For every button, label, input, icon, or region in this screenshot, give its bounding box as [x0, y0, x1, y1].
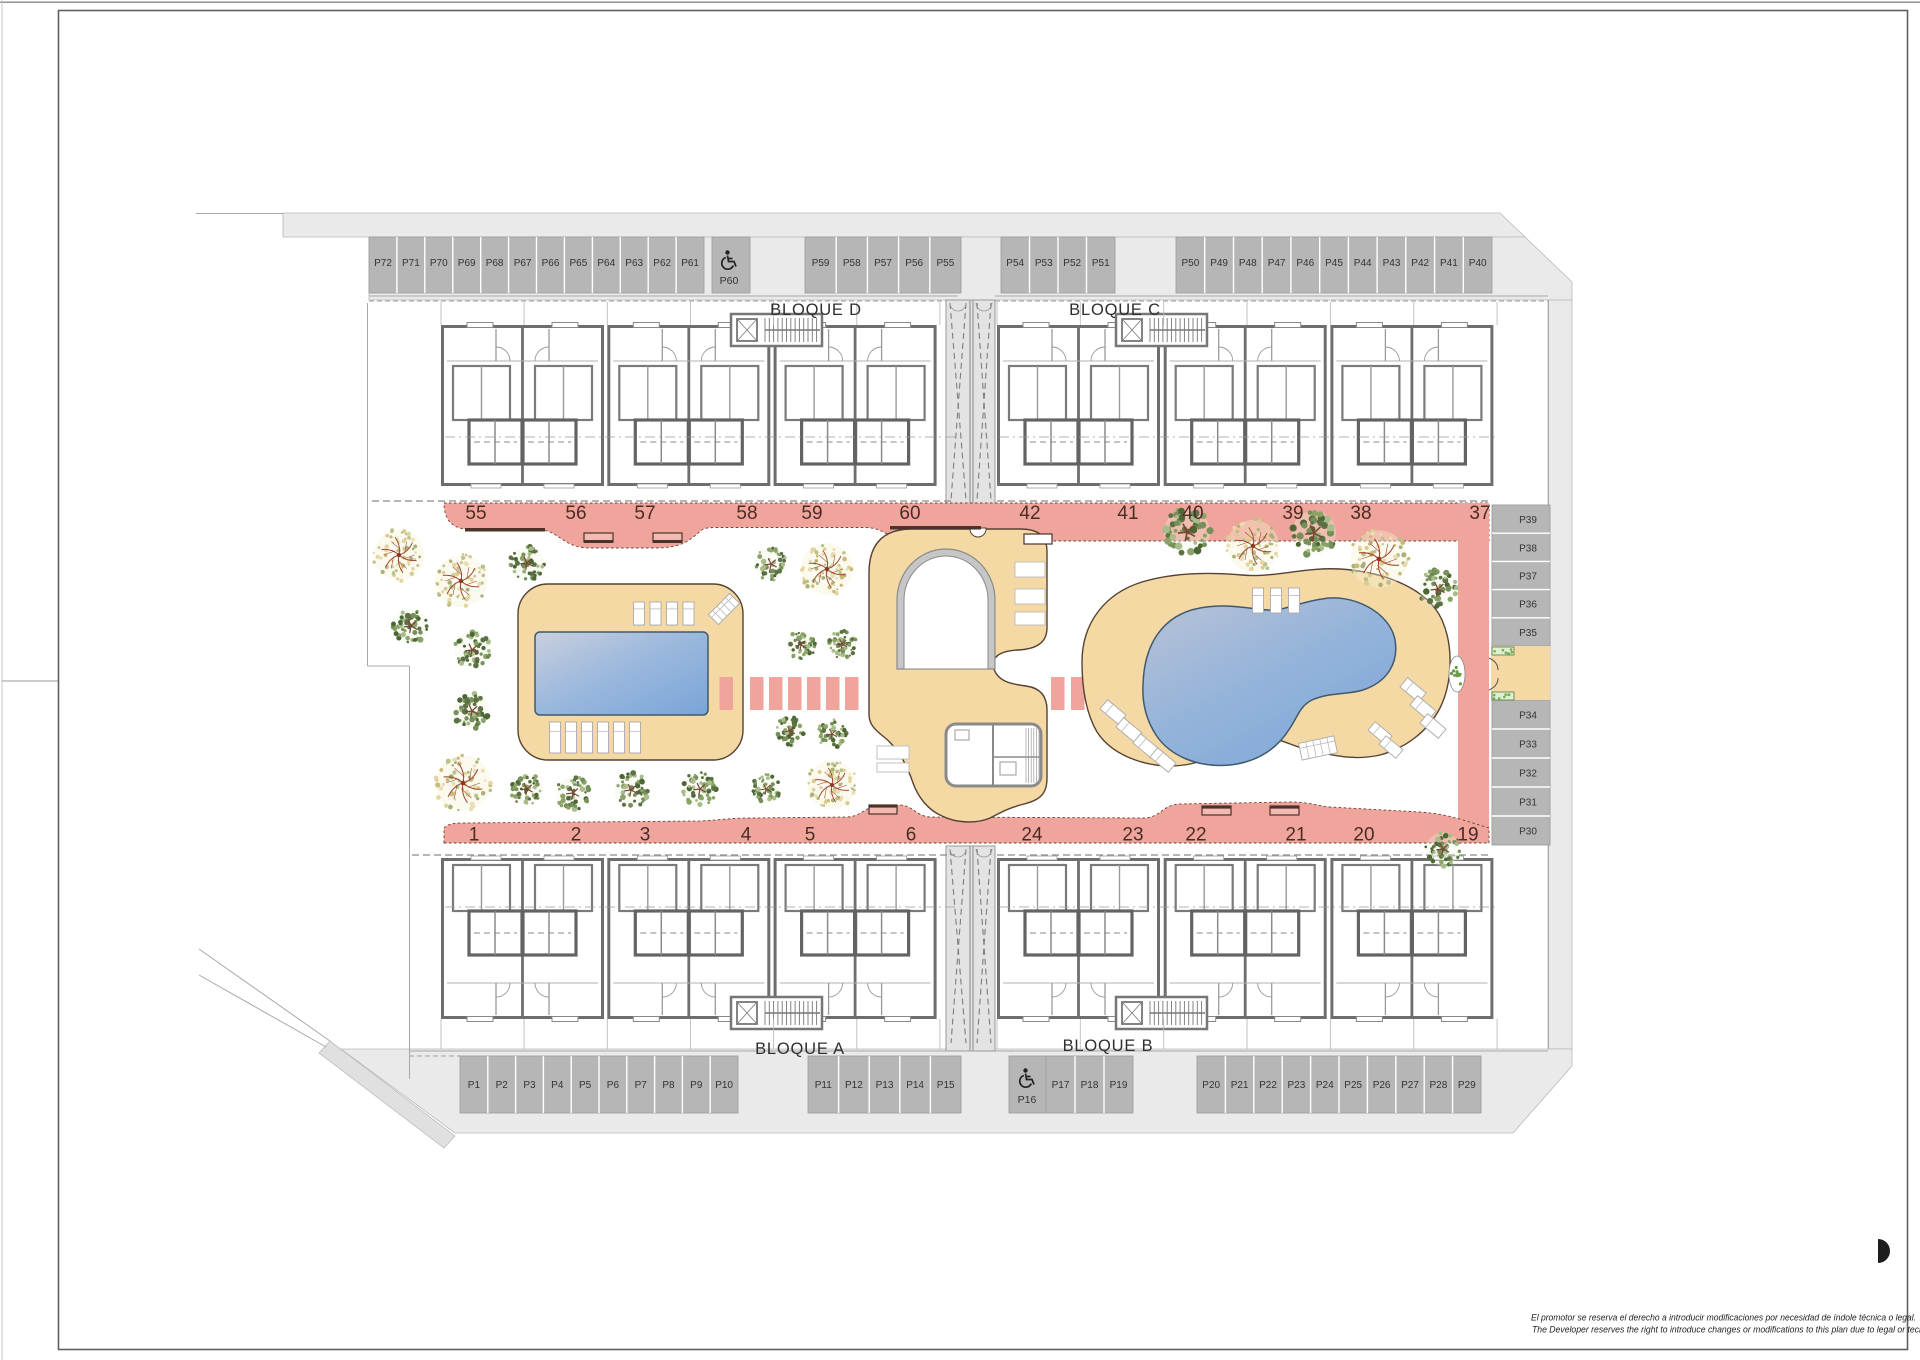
svg-text:58: 58 [736, 503, 757, 524]
svg-text:The Developer reserves the rig: The Developer reserves the right to intr… [1532, 1325, 1920, 1335]
svg-text:P25: P25 [1344, 1080, 1362, 1091]
svg-text:BLOQUE D: BLOQUE D [770, 301, 862, 319]
svg-text:P41: P41 [1440, 258, 1458, 269]
svg-text:P28: P28 [1430, 1080, 1448, 1091]
svg-text:24: 24 [1021, 825, 1043, 846]
svg-text:P10: P10 [715, 1080, 733, 1091]
svg-text:P54: P54 [1006, 258, 1024, 269]
svg-text:BLOQUE C: BLOQUE C [1069, 301, 1161, 319]
svg-text:P8: P8 [662, 1080, 675, 1091]
svg-text:P59: P59 [812, 258, 830, 269]
svg-text:P51: P51 [1092, 258, 1110, 269]
svg-text:21: 21 [1285, 825, 1306, 846]
svg-text:P64: P64 [597, 258, 615, 269]
svg-text:6: 6 [906, 825, 917, 846]
svg-text:P40: P40 [1469, 258, 1487, 269]
svg-text:El promotor se reserva el dere: El promotor se reserva el derecho a intr… [1531, 1313, 1916, 1323]
svg-text:P14: P14 [906, 1080, 924, 1091]
svg-text:P13: P13 [876, 1080, 894, 1091]
svg-text:P3: P3 [523, 1080, 536, 1091]
svg-text:P20: P20 [1202, 1080, 1220, 1091]
svg-text:P1: P1 [468, 1080, 481, 1091]
svg-text:60: 60 [899, 503, 920, 524]
svg-text:P11: P11 [815, 1080, 832, 1091]
svg-text:55: 55 [465, 503, 486, 524]
svg-text:P47: P47 [1268, 258, 1286, 269]
svg-text:P55: P55 [937, 258, 955, 269]
svg-text:1: 1 [469, 825, 480, 846]
svg-text:40: 40 [1182, 503, 1203, 524]
svg-text:BLOQUE B: BLOQUE B [1063, 1037, 1154, 1055]
svg-text:42: 42 [1019, 503, 1040, 524]
svg-text:P26: P26 [1373, 1080, 1391, 1091]
svg-text:P32: P32 [1519, 769, 1537, 780]
svg-text:22: 22 [1185, 825, 1206, 846]
svg-text:4: 4 [741, 825, 752, 846]
svg-text:P44: P44 [1354, 258, 1372, 269]
svg-text:P67: P67 [514, 258, 532, 269]
svg-text:P38: P38 [1519, 543, 1537, 554]
svg-text:P58: P58 [843, 258, 861, 269]
svg-text:P2: P2 [496, 1080, 509, 1091]
svg-text:2: 2 [571, 825, 582, 846]
svg-text:P33: P33 [1519, 740, 1537, 751]
svg-text:P18: P18 [1081, 1080, 1099, 1091]
svg-text:19: 19 [1457, 825, 1478, 846]
svg-text:39: 39 [1282, 503, 1303, 524]
svg-text:P62: P62 [653, 258, 671, 269]
svg-text:P65: P65 [570, 258, 588, 269]
svg-text:P69: P69 [458, 258, 476, 269]
svg-text:P23: P23 [1288, 1080, 1306, 1091]
svg-text:P34: P34 [1519, 711, 1537, 722]
svg-text:P9: P9 [690, 1080, 703, 1091]
svg-text:P15: P15 [937, 1080, 955, 1091]
svg-text:P63: P63 [625, 258, 643, 269]
svg-text:P16: P16 [1018, 1094, 1037, 1106]
svg-text:P39: P39 [1519, 515, 1537, 526]
svg-text:5: 5 [805, 825, 816, 846]
svg-text:P53: P53 [1035, 258, 1053, 269]
svg-text:P4: P4 [551, 1080, 564, 1091]
svg-text:P42: P42 [1411, 258, 1429, 269]
svg-text:P50: P50 [1182, 258, 1200, 269]
svg-text:P27: P27 [1401, 1080, 1419, 1091]
svg-text:37: 37 [1469, 503, 1490, 524]
svg-text:38: 38 [1350, 503, 1371, 524]
svg-text:41: 41 [1117, 503, 1138, 524]
svg-text:P61: P61 [681, 258, 699, 269]
svg-text:P57: P57 [874, 258, 892, 269]
svg-text:BLOQUE A: BLOQUE A [755, 1040, 845, 1058]
svg-text:P48: P48 [1239, 258, 1257, 269]
svg-text:P31: P31 [1519, 798, 1537, 809]
svg-text:P70: P70 [430, 258, 448, 269]
svg-text:P66: P66 [542, 258, 560, 269]
svg-text:P45: P45 [1325, 258, 1343, 269]
svg-text:P37: P37 [1519, 572, 1537, 583]
svg-text:P52: P52 [1063, 258, 1081, 269]
svg-text:P60: P60 [720, 275, 739, 287]
svg-text:P56: P56 [905, 258, 923, 269]
svg-text:P43: P43 [1383, 258, 1401, 269]
svg-text:P12: P12 [845, 1080, 863, 1091]
svg-text:P46: P46 [1296, 258, 1314, 269]
svg-text:P24: P24 [1316, 1080, 1334, 1091]
svg-text:P7: P7 [635, 1080, 648, 1091]
svg-text:P71: P71 [402, 258, 420, 269]
svg-text:57: 57 [634, 503, 655, 524]
svg-text:P6: P6 [607, 1080, 620, 1091]
svg-text:59: 59 [801, 503, 822, 524]
svg-text:56: 56 [565, 503, 586, 524]
svg-text:P72: P72 [374, 258, 392, 269]
svg-text:P36: P36 [1519, 600, 1537, 611]
svg-text:P22: P22 [1259, 1080, 1277, 1091]
svg-text:P29: P29 [1458, 1080, 1476, 1091]
svg-text:P5: P5 [579, 1080, 592, 1091]
svg-text:23: 23 [1122, 825, 1143, 846]
svg-text:P49: P49 [1210, 258, 1228, 269]
svg-text:P21: P21 [1231, 1080, 1249, 1091]
svg-text:P68: P68 [486, 258, 504, 269]
svg-text:20: 20 [1353, 825, 1374, 846]
svg-text:P19: P19 [1110, 1080, 1128, 1091]
svg-text:P35: P35 [1519, 628, 1537, 639]
svg-text:P30: P30 [1519, 827, 1537, 838]
svg-text:3: 3 [640, 825, 651, 846]
svg-text:P17: P17 [1052, 1080, 1070, 1091]
